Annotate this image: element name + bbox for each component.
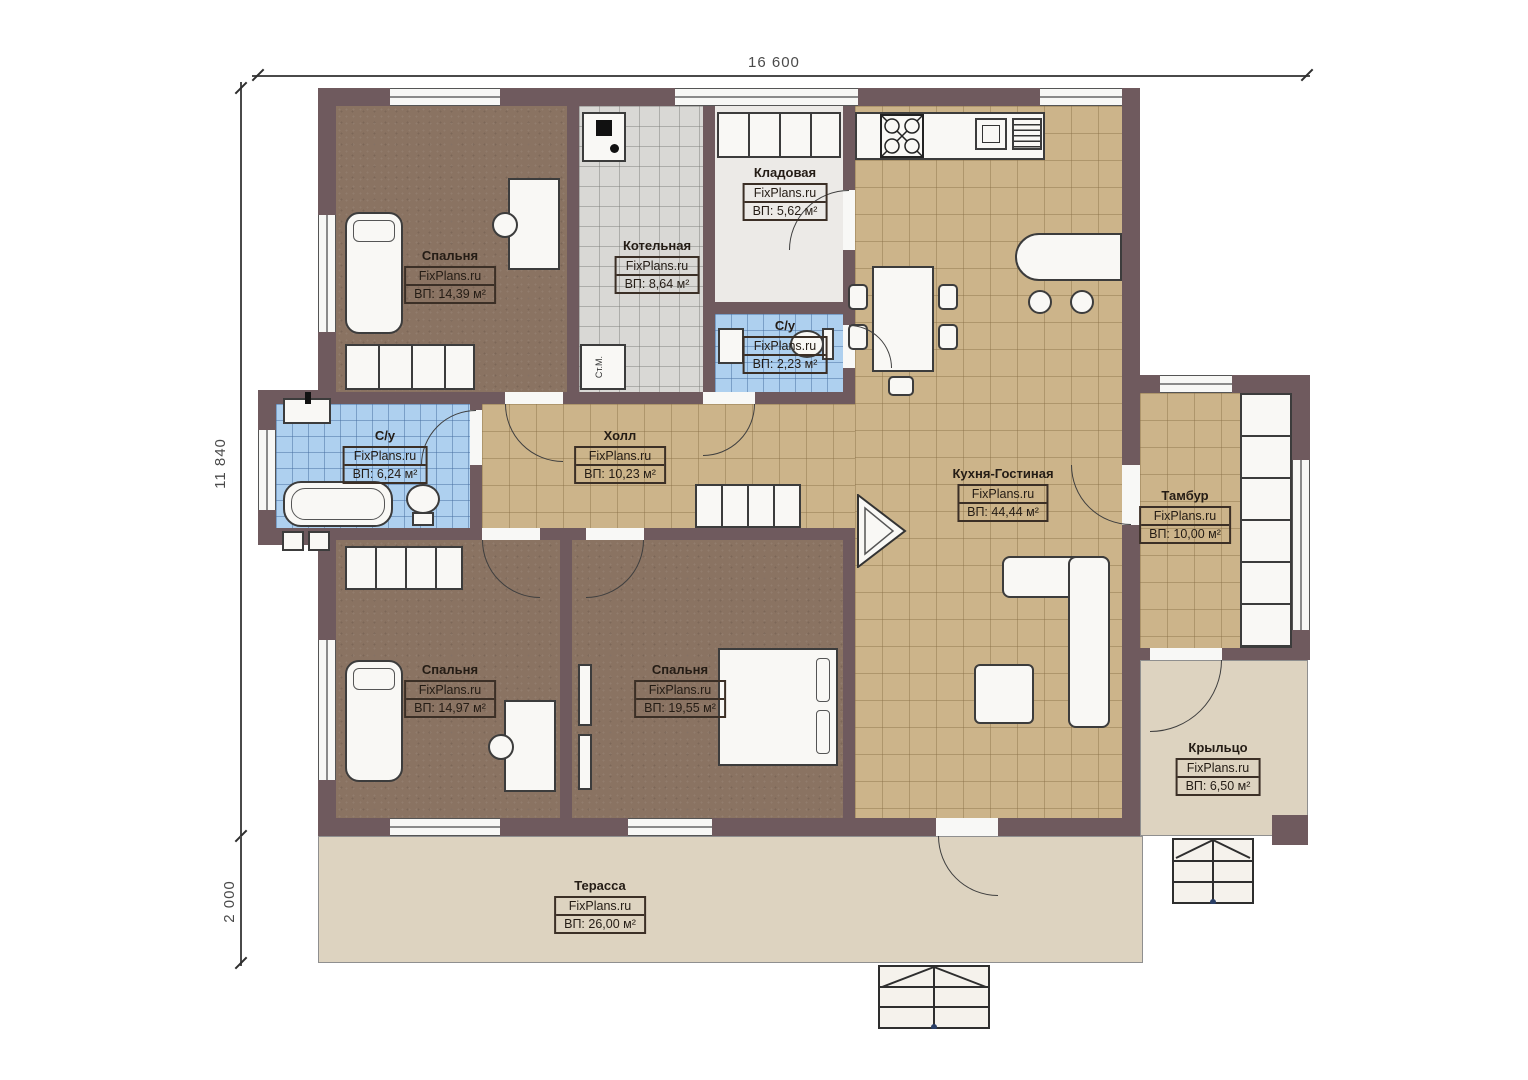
room-label-hall: Холл FixPlans.ru ВП: 10,23 м² xyxy=(574,428,666,484)
window xyxy=(675,88,858,106)
pillow-icon xyxy=(816,658,830,702)
room-label-tambour: Тамбур FixPlans.ru ВП: 10,00 м² xyxy=(1139,488,1231,544)
room-name: Холл xyxy=(574,428,666,443)
watermark: FixPlans.ru xyxy=(745,338,826,354)
wall xyxy=(567,106,579,392)
dimension-terrace-label: 2 000 xyxy=(221,880,238,923)
room-name: Спальня xyxy=(404,662,496,677)
window xyxy=(1160,375,1232,393)
watermark: FixPlans.ru xyxy=(617,258,698,274)
door-opening xyxy=(936,818,998,836)
terrace-stairs-icon xyxy=(878,965,990,1029)
dimension-height-label: 11 840 xyxy=(212,438,229,489)
door-opening xyxy=(1150,648,1222,660)
coffee-table-icon xyxy=(974,664,1034,724)
chair-icon xyxy=(492,212,518,238)
watermark: FixPlans.ru xyxy=(1141,508,1229,524)
corner-fireplace-icon xyxy=(857,494,909,568)
room-label-boiler: Котельная FixPlans.ru ВП: 8,64 м² xyxy=(615,238,700,294)
room-area: ВП: 14,39 м² xyxy=(406,284,494,302)
dimension-width-label: 16 600 xyxy=(748,54,800,71)
window xyxy=(1040,88,1122,106)
room-label-pantry: Кладовая FixPlans.ru ВП: 5,62 м² xyxy=(743,165,828,221)
room-name: С/у xyxy=(743,318,828,333)
stove-icon xyxy=(880,114,924,158)
porch-stairs-icon xyxy=(1172,838,1254,904)
room-label-bedroom-3: Спальня FixPlans.ru ВП: 19,55 м² xyxy=(634,662,726,718)
window xyxy=(628,818,712,836)
kitchen-sink-icon xyxy=(975,118,1007,150)
room-name: Терасса xyxy=(554,878,646,893)
window xyxy=(390,88,500,106)
washing-machine-icon: Ст.М. xyxy=(580,344,626,390)
cabinet-icon xyxy=(282,531,304,551)
faucet-icon xyxy=(305,392,311,404)
room-name: Кладовая xyxy=(743,165,828,180)
sink-basin xyxy=(982,125,1000,143)
cabinet-icon xyxy=(308,531,330,551)
door-opening xyxy=(505,392,563,404)
room-area: ВП: 8,64 м² xyxy=(617,274,698,292)
chair-icon xyxy=(848,284,868,310)
chair-icon xyxy=(888,376,914,396)
watermark: FixPlans.ru xyxy=(576,448,664,464)
porch-column xyxy=(1272,815,1308,845)
dimension-line-top xyxy=(252,75,1310,77)
room-name: Спальня xyxy=(404,248,496,263)
room-area: ВП: 10,23 м² xyxy=(576,464,664,482)
sink-icon xyxy=(283,398,331,424)
wall xyxy=(336,392,855,404)
window xyxy=(258,430,276,510)
watermark: FixPlans.ru xyxy=(636,682,724,698)
window xyxy=(318,215,336,332)
wall xyxy=(560,540,572,818)
boiler-box-icon xyxy=(596,120,612,136)
room-area: ВП: 6,24 м² xyxy=(345,464,426,482)
dresser-icon xyxy=(578,664,592,726)
room-label-wc-small: С/у FixPlans.ru ВП: 2,23 м² xyxy=(743,318,828,374)
watermark: FixPlans.ru xyxy=(556,898,644,914)
door-opening xyxy=(703,392,755,404)
drying-rack-icon xyxy=(1012,118,1042,150)
room-area: ВП: 5,62 м² xyxy=(745,201,826,219)
room-name: Крыльцо xyxy=(1176,740,1261,755)
room-label-bedroom-2: Спальня FixPlans.ru ВП: 14,97 м² xyxy=(404,662,496,718)
terrace-deck xyxy=(318,836,1143,963)
pillow-icon xyxy=(353,668,395,690)
room-area: ВП: 19,55 м² xyxy=(636,698,724,716)
wall xyxy=(703,106,715,392)
boiler-valve-icon xyxy=(610,144,619,153)
dimension-line-left-main xyxy=(240,82,242,842)
sink-icon xyxy=(718,328,744,364)
watermark: FixPlans.ru xyxy=(406,268,494,284)
room-area: ВП: 14,97 м² xyxy=(406,698,494,716)
watermark: FixPlans.ru xyxy=(406,682,494,698)
room-area: ВП: 10,00 м² xyxy=(1141,524,1229,542)
bed-icon xyxy=(345,660,403,782)
watermark: FixPlans.ru xyxy=(959,486,1047,502)
dimension-line-left-terrace xyxy=(240,836,242,966)
room-area: ВП: 26,00 м² xyxy=(556,914,644,932)
stool-icon xyxy=(1070,290,1094,314)
bathtub-icon xyxy=(283,481,393,527)
bed-icon xyxy=(718,648,838,766)
watermark: FixPlans.ru xyxy=(745,185,826,201)
wall xyxy=(276,528,855,540)
watermark: FixPlans.ru xyxy=(1178,760,1259,776)
room-label-porch: Крыльцо FixPlans.ru ВП: 6,50 м² xyxy=(1176,740,1261,796)
washing-machine-label: Ст.М. xyxy=(594,356,604,378)
room-label-terrace: Терасса FixPlans.ru ВП: 26,00 м² xyxy=(554,878,646,934)
pillow-icon xyxy=(353,220,395,242)
room-name: Спальня xyxy=(634,662,726,677)
chair-icon xyxy=(938,284,958,310)
floor-plan: Ст.М. xyxy=(0,0,1528,1080)
stool-icon xyxy=(1028,290,1052,314)
chair-icon xyxy=(938,324,958,350)
door-opening xyxy=(482,528,540,540)
bed-icon xyxy=(345,212,403,334)
wall xyxy=(715,302,843,314)
room-area: ВП: 44,44 м² xyxy=(959,502,1047,520)
chair-icon xyxy=(488,734,514,760)
pillow-icon xyxy=(816,710,830,754)
closet-icon xyxy=(695,484,801,528)
room-label-bedroom-1: Спальня FixPlans.ru ВП: 14,39 м² xyxy=(404,248,496,304)
boiler-unit-icon xyxy=(582,112,626,162)
watermark: FixPlans.ru xyxy=(345,448,426,464)
room-label-bathroom: С/у FixPlans.ru ВП: 6,24 м² xyxy=(343,428,428,484)
pantry-shelves-icon xyxy=(717,112,841,158)
room-area: ВП: 2,23 м² xyxy=(745,354,826,372)
toilet-icon xyxy=(406,484,440,514)
wardrobe-icon xyxy=(345,344,475,390)
room-name: Тамбур xyxy=(1139,488,1231,503)
wardrobe-icon xyxy=(345,546,463,590)
wall xyxy=(843,528,855,818)
room-area: ВП: 6,50 м² xyxy=(1178,776,1259,794)
dresser-icon xyxy=(578,734,592,790)
door-opening xyxy=(586,528,644,540)
window xyxy=(1292,460,1310,630)
tambour-closet xyxy=(1240,393,1292,648)
room-name: Котельная xyxy=(615,238,700,253)
room-label-kitchen-living: Кухня-Гостиная FixPlans.ru ВП: 44,44 м² xyxy=(952,466,1053,522)
window xyxy=(318,640,336,780)
window xyxy=(390,818,500,836)
sofa-icon xyxy=(1068,556,1110,728)
toilet-base-icon xyxy=(412,512,434,526)
room-name: С/у xyxy=(343,428,428,443)
bathtub-inner xyxy=(291,488,385,520)
room-name: Кухня-Гостиная xyxy=(952,466,1053,481)
bar-counter-icon xyxy=(1015,233,1122,281)
